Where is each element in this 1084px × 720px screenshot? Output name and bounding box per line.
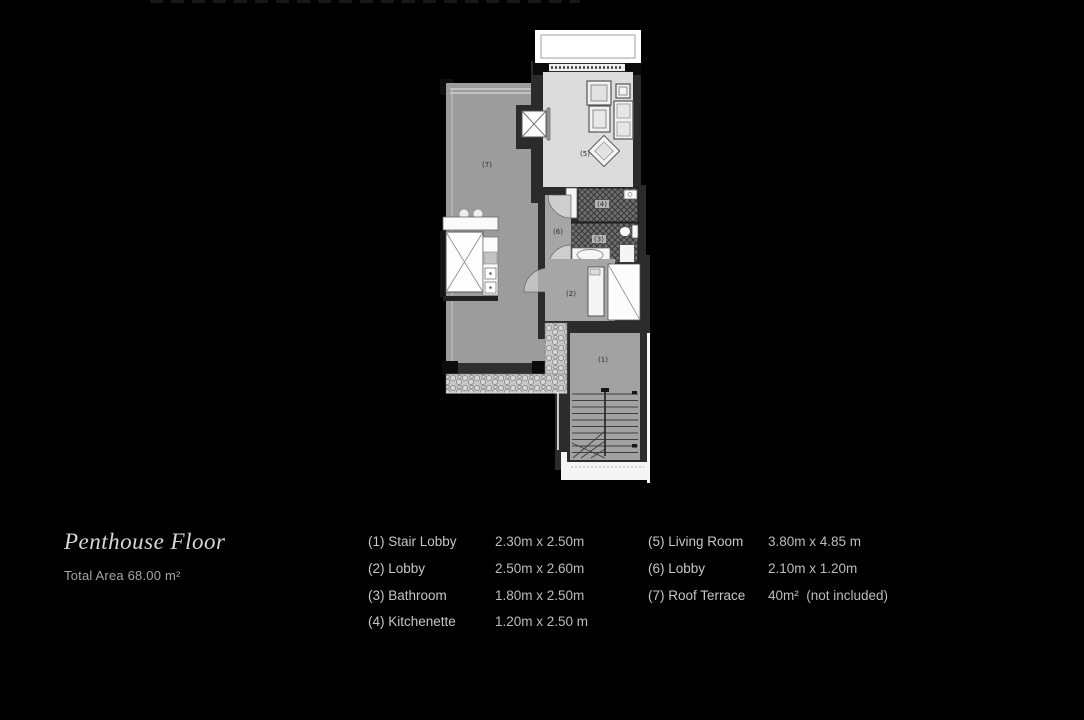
page: (5) <box>0 0 1084 720</box>
kitchenette: (4) <box>566 188 638 222</box>
legend-room-label: (6) Lobby <box>648 561 768 576</box>
staircase <box>570 388 640 460</box>
room-label-2: (2) <box>566 290 576 298</box>
legend-row: (1) Stair Lobby 2.30m x 2.50m <box>368 534 588 561</box>
legend-room-dims: 3.80m x 4.85 m <box>768 534 861 549</box>
lobby-2: (2) <box>545 259 615 321</box>
legend-row: (6) Lobby 2.10m x 1.20m <box>648 561 888 588</box>
room-label-5: (5) <box>580 150 590 158</box>
page-title: Penthouse Floor <box>64 529 225 555</box>
room-label-4: (4) <box>597 201 607 209</box>
legend-room-label: (5) Living Room <box>648 534 768 549</box>
legend-room-dims: 1.80m x 2.50m <box>495 588 584 603</box>
legend-row: (4) Kitchenette 1.20m x 2.50 m <box>368 614 588 641</box>
legend-room-label: (7) Roof Terrace <box>648 588 768 603</box>
title-block: Penthouse Floor Total Area 68.00 m² <box>64 529 225 583</box>
room-label-3: (3) <box>594 236 604 244</box>
legend-room-label: (3) Bathroom <box>368 588 495 603</box>
legend-room-dims: 2.10m x 1.20m <box>768 561 857 576</box>
legend-column-1: (1) Stair Lobby 2.30m x 2.50m (2) Lobby … <box>368 534 588 641</box>
legend-room-label: (4) Kitchenette <box>368 614 495 629</box>
legend-column-2: (5) Living Room 3.80m x 4.85 m (6) Lobby… <box>648 534 888 614</box>
floor-plan: (5) <box>438 15 653 490</box>
legend-room-dims: 40m² (not included) <box>768 588 888 603</box>
legend-row: (2) Lobby 2.50m x 2.60m <box>368 561 588 588</box>
kitchen-counter <box>440 209 498 301</box>
legend-row: (7) Roof Terrace 40m² (not included) <box>648 588 888 615</box>
living-room: (5) <box>543 72 633 187</box>
legend-row: (5) Living Room 3.80m x 4.85 m <box>648 534 888 561</box>
sofa <box>614 101 633 139</box>
column-x <box>522 111 546 137</box>
top-edge-artifact <box>150 0 580 3</box>
legend-row: (3) Bathroom 1.80m x 2.50m <box>368 588 588 615</box>
room-label-1: (1) <box>598 356 608 364</box>
legend-room-label: (1) Stair Lobby <box>368 534 495 549</box>
legend-room-label: (2) Lobby <box>368 561 495 576</box>
legend-room-dims: 1.20m x 2.50 m <box>495 614 588 629</box>
bathroom: (3) <box>570 223 638 263</box>
room-label-6: (6) <box>553 228 563 236</box>
legend-room-dims: 2.30m x 2.50m <box>495 534 584 549</box>
legend-room-dims: 2.50m x 2.60m <box>495 561 584 576</box>
stair-void <box>608 264 640 320</box>
stair-lobby: (1) <box>570 333 640 388</box>
room-label-7: (7) <box>482 161 492 169</box>
total-area-label: Total Area 68.00 m² <box>64 568 225 583</box>
